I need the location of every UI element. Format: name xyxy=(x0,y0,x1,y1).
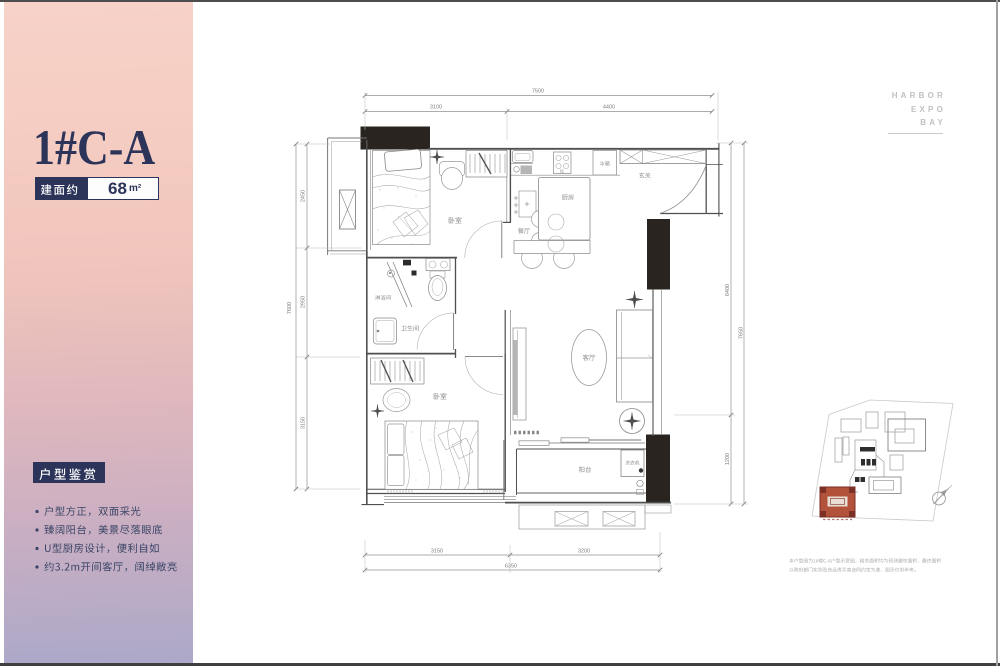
svg-text:3200: 3200 xyxy=(578,549,590,555)
svg-text:7600: 7600 xyxy=(287,302,293,314)
svg-text:3150: 3150 xyxy=(431,549,443,555)
svg-text:7650: 7650 xyxy=(739,327,745,339)
svg-text:6400: 6400 xyxy=(725,284,731,296)
svg-text:2450: 2450 xyxy=(301,190,307,202)
svg-text:1200: 1200 xyxy=(725,453,731,465)
svg-text:4400: 4400 xyxy=(603,105,615,111)
svg-text:3150: 3150 xyxy=(301,417,307,429)
svg-text:7500: 7500 xyxy=(532,89,544,95)
svg-text:2950: 2950 xyxy=(301,296,307,308)
svg-text:6350: 6350 xyxy=(505,564,517,570)
svg-text:3100: 3100 xyxy=(430,105,442,111)
